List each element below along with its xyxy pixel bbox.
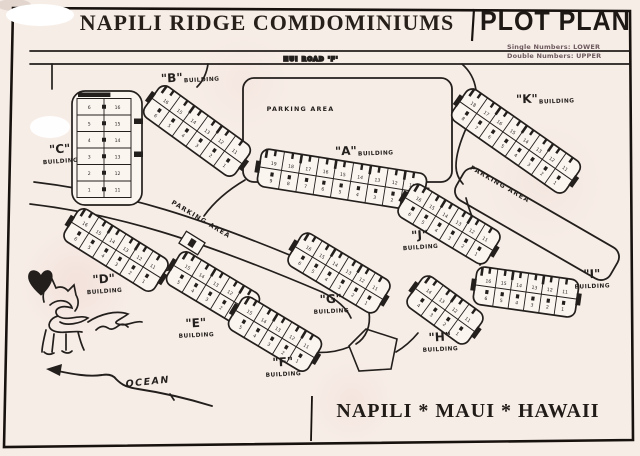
building-word: BUILDING [87, 288, 123, 296]
building-letter: "A" [335, 144, 357, 159]
building-word: BUILDING [314, 308, 350, 316]
entry-mark [102, 154, 106, 158]
plot-plan-label: PLOT PLAN [480, 6, 631, 37]
unit-number: 15 [115, 121, 121, 127]
unit-number: 16 [322, 169, 329, 176]
building-letter: "F" [272, 354, 293, 369]
entry-mark [485, 290, 489, 294]
unit-number: 1 [88, 187, 91, 193]
building-word: BUILDING [539, 98, 575, 105]
building-label-d: "D"BUILDING [85, 271, 122, 296]
ocean-arrowhead [46, 364, 62, 376]
entry-mark [102, 105, 106, 109]
building-letter: "E" [185, 315, 206, 330]
entry-mark [562, 301, 566, 305]
unit-number: 15 [500, 280, 507, 287]
unit-number: 13 [374, 177, 381, 184]
whiteout-blobs [6, 4, 74, 138]
cat-doodle-head [43, 279, 78, 311]
walkway [396, 333, 418, 352]
entry-mark [516, 294, 520, 298]
unit-number: 19 [270, 161, 277, 168]
entry-mark [339, 183, 343, 187]
ocean-label: OCEAN [125, 374, 170, 390]
building-c: 616515414313212111 [72, 91, 143, 205]
entry-mark [102, 171, 106, 175]
building-b: 166155144133122111 [137, 80, 256, 181]
plot-plan-map: HUI ROAD 'F' PARKING AREAPARKING AREAPAR… [0, 0, 640, 456]
entry-mark [102, 138, 106, 142]
unit-number: 14 [357, 174, 364, 181]
entry-mark [546, 298, 550, 302]
unit-number: 12 [115, 171, 121, 177]
plan-title: NAPILI RIDGE COMDOMINIUMS [78, 10, 456, 36]
signature-scribble [96, 324, 128, 330]
building-i: 166155144133122111 [468, 265, 583, 318]
unit-number: 16 [115, 105, 121, 111]
unit-number: 11 [115, 187, 121, 193]
entry-mark [287, 175, 291, 179]
unit-number: 5 [88, 121, 91, 127]
building-word: BUILDING [184, 77, 220, 85]
entry-mark [322, 180, 326, 184]
building-j: 166155144133122111 [392, 179, 507, 269]
entry-mark [531, 296, 535, 300]
unit-number: 18 [288, 163, 295, 170]
unit-number: 6 [88, 105, 91, 111]
location-footer: NAPILI * MAUI * HAWAII [318, 400, 618, 423]
building-letter: "B" [161, 70, 183, 85]
footer-divider-line [311, 396, 312, 441]
building-letter: "C" [49, 141, 71, 156]
pentagon-lot [349, 329, 397, 371]
roof-mark [78, 93, 110, 98]
parking-area-label: PARKING AREA [170, 198, 232, 240]
cat-doodle-legs [42, 330, 84, 354]
title-divider-line [472, 9, 474, 41]
entry-mark [391, 191, 395, 195]
unit-number: 17 [305, 166, 312, 173]
building-word: BUILDING [266, 371, 302, 379]
parking-area-label: PARKING AREA [267, 105, 335, 113]
unit-number: 12 [546, 287, 553, 294]
unit-number: 4 [88, 138, 91, 144]
building-label-e: "E"BUILDING [178, 315, 215, 340]
unit-number: 16 [485, 278, 492, 285]
unit-number: 2 [88, 171, 91, 177]
entry-mark [500, 292, 504, 296]
building-label-b: "B"BUILDING [161, 69, 220, 86]
road-label: HUI ROAD 'F' [283, 56, 338, 63]
entry-mark [305, 178, 309, 182]
whiteout-blob [30, 116, 70, 138]
building-letter: "G" [319, 291, 342, 306]
cat-doodle-body [49, 301, 88, 333]
building-d: 166155144133122111 [58, 204, 175, 297]
cat-doodle-tail [88, 312, 142, 324]
interior-road [204, 180, 245, 216]
unit-number: 15 [339, 172, 346, 179]
legend-double-numbers: Double Numbers: UPPER [507, 52, 601, 60]
entry-mark [357, 186, 361, 190]
entry-mark [102, 121, 106, 125]
building-word: BUILDING [358, 150, 394, 157]
utility-hut [179, 231, 205, 255]
unit-number: 12 [391, 180, 398, 187]
stair-tab [134, 119, 143, 125]
entry-mark [102, 187, 106, 191]
whiteout-blob [6, 4, 74, 26]
building-word: BUILDING [403, 244, 439, 252]
building-word: BUILDING [179, 332, 215, 340]
unit-number: 3 [88, 154, 91, 160]
unit-number: 13 [115, 154, 121, 160]
entry-mark [374, 189, 378, 193]
building-letter: "K" [516, 92, 538, 107]
parking-area-central: PARKING AREA [170, 198, 232, 240]
parking-area-label: PARKING AREA [469, 164, 532, 205]
building-letter: "J" [411, 227, 429, 242]
building-label-a: "A"BUILDING [335, 142, 394, 158]
scanned-plot-plan: { "strings": { "title": "NAPILI RIDGE CO… [0, 0, 640, 456]
building-letter: "I" [583, 267, 600, 282]
unit-number: 13 [531, 285, 538, 292]
building-letter: "H" [428, 329, 451, 344]
entry-mark [270, 172, 274, 176]
unit-number: 14 [516, 283, 523, 290]
building-letter: "D" [92, 271, 115, 287]
unit-number: 14 [115, 138, 121, 144]
unit-number: 11 [562, 289, 569, 296]
building-label-k: "K"BUILDING [516, 90, 575, 106]
legend-single-numbers: Single Numbers: LOWER [507, 43, 600, 51]
building-word: BUILDING [574, 283, 610, 290]
stair-tab [134, 152, 143, 158]
building-word: BUILDING [423, 346, 459, 354]
